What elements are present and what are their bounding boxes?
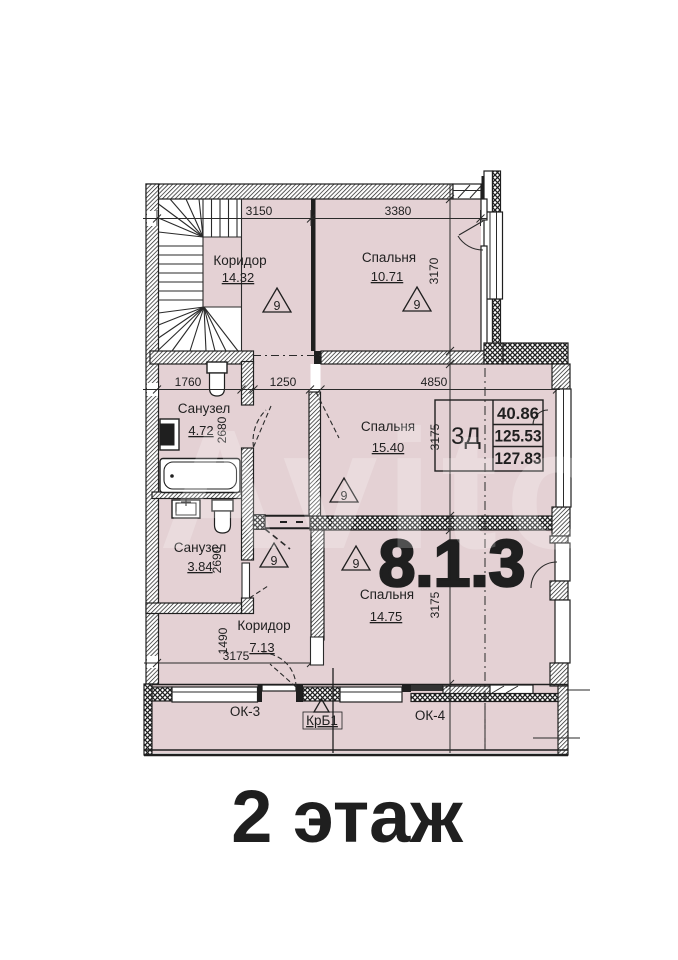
svg-text:9: 9 bbox=[414, 298, 421, 312]
svg-text:2 этаж: 2 этаж bbox=[231, 775, 464, 858]
svg-text:3150: 3150 bbox=[246, 204, 273, 218]
svg-text:ОК-4: ОК-4 bbox=[415, 708, 446, 723]
svg-text:3380: 3380 bbox=[385, 204, 412, 218]
svg-text:Avito: Avito bbox=[159, 395, 618, 585]
svg-text:1490: 1490 bbox=[216, 627, 230, 654]
svg-text:1250: 1250 bbox=[270, 375, 297, 389]
svg-text:4850: 4850 bbox=[421, 375, 448, 389]
svg-text:1760: 1760 bbox=[175, 375, 202, 389]
svg-text:КрБ1: КрБ1 bbox=[306, 713, 338, 728]
svg-text:Коридор: Коридор bbox=[237, 618, 290, 633]
svg-text:Коридор: Коридор bbox=[213, 253, 266, 268]
svg-text:Спальня: Спальня bbox=[362, 250, 416, 265]
svg-text:14.75: 14.75 bbox=[370, 609, 403, 624]
svg-text:3170: 3170 bbox=[427, 257, 441, 284]
svg-text:9: 9 bbox=[274, 299, 281, 313]
svg-text:10.71: 10.71 bbox=[371, 269, 404, 284]
svg-text:7.13: 7.13 bbox=[249, 640, 274, 655]
svg-text:ОК-3: ОК-3 bbox=[230, 704, 260, 719]
svg-text:14.32: 14.32 bbox=[222, 270, 255, 285]
